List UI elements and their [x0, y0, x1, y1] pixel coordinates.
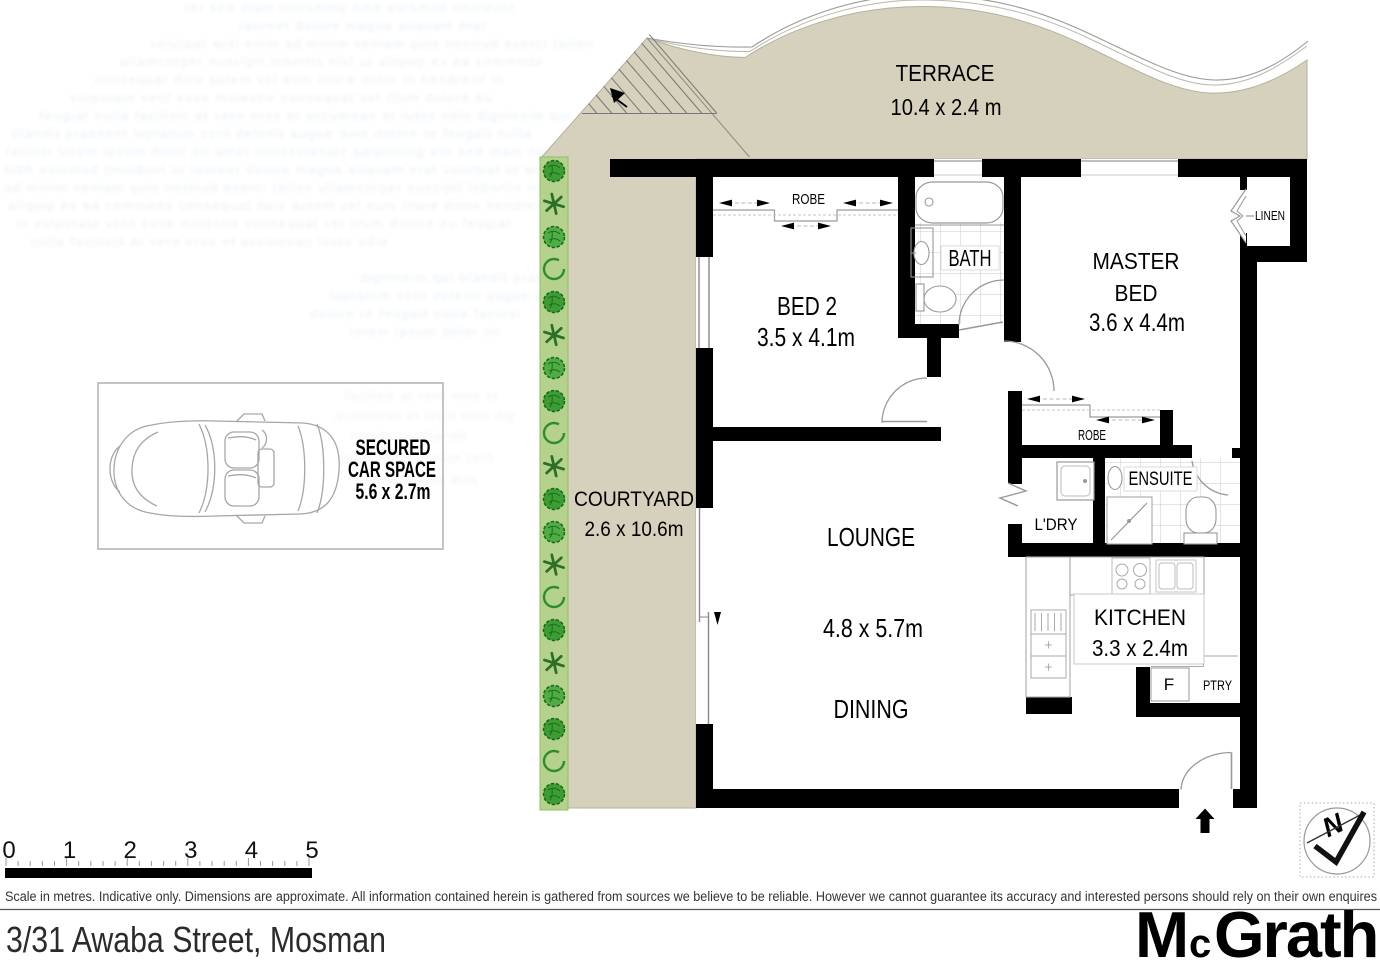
svg-text:ad minim veniam quis nostrud e: ad minim veniam quis nostrud exerci tati… [4, 180, 572, 195]
svg-text:volutpat wisi enim ad minim ve: volutpat wisi enim ad minim veniam quis … [150, 36, 594, 51]
svg-text:5: 5 [305, 837, 318, 864]
svg-text:blandit praesent luptatum zzri: blandit praesent luptatum zzril delenit … [12, 126, 533, 141]
svg-text:2.6 x 10.6m: 2.6 x 10.6m [585, 518, 684, 541]
svg-text:3.3 x 2.4m: 3.3 x 2.4m [1092, 635, 1188, 661]
svg-text:BED 2: BED 2 [777, 291, 837, 321]
svg-text:luptatum zzril delenit augue d: luptatum zzril delenit augue duis [330, 288, 565, 303]
svg-text:ROBE: ROBE [1078, 427, 1106, 444]
svg-text:L'DRY: L'DRY [1035, 516, 1078, 534]
svg-text:KITCHEN: KITCHEN [1094, 605, 1186, 630]
svg-text:Grath: Grath [1214, 898, 1377, 960]
svg-text:ENSUITE: ENSUITE [1129, 469, 1193, 490]
svg-text:aliquip ex ea commodo consequa: aliquip ex ea commodo consequat duis aut… [8, 198, 551, 213]
svg-text:feugiat nulla facilisis at ver: feugiat nulla facilisis at vero eros et … [40, 108, 572, 123]
svg-text:ROBE: ROBE [792, 191, 825, 208]
svg-text:laoreet dolore magna aliquam e: laoreet dolore magna aliquam erat [240, 18, 488, 33]
svg-text:nibh euismod tincidunt ut laor: nibh euismod tincidunt ut laoreet dolore… [4, 162, 592, 177]
svg-text:3.5 x 4.1m: 3.5 x 4.1m [757, 322, 855, 352]
svg-text:3: 3 [184, 837, 197, 864]
svg-text:4.8 x 5.7m: 4.8 x 5.7m [823, 613, 923, 643]
svg-text:TERRACE: TERRACE [896, 60, 995, 86]
svg-text:ullamcorper suscipit lobortis: ullamcorper suscipit lobortis nisl ut al… [120, 54, 544, 69]
svg-text:BED: BED [1115, 280, 1158, 306]
svg-text:COURTYARD: COURTYARD [574, 488, 694, 511]
svg-text:0: 0 [2, 837, 15, 864]
svg-text:3/31 Awaba Street, Mosman: 3/31 Awaba Street, Mosman [6, 919, 386, 960]
svg-text:2: 2 [124, 837, 137, 864]
svg-text:1: 1 [63, 837, 76, 864]
svg-text:accumsan et iusto odio dig: accumsan et iusto odio dig [335, 408, 515, 423]
svg-text:nulla facilisis at vero eros e: nulla facilisis at vero eros et accumsan… [30, 234, 388, 249]
svg-text:MASTER: MASTER [1093, 248, 1180, 274]
svg-text:PTRY: PTRY [1203, 677, 1233, 693]
svg-text:5.6 x 2.7m: 5.6 x 2.7m [356, 479, 431, 504]
svg-text:DINING: DINING [834, 694, 909, 724]
svg-text:consequat duis autem vel eum i: consequat duis autem vel eum iriure dolo… [95, 72, 504, 87]
svg-text:vulputate velit esse molestie: vulputate velit esse molestie consequat … [70, 90, 493, 105]
svg-text:in vulputate velit esse molest: in vulputate velit esse molestie consequ… [16, 216, 512, 231]
svg-text:3.6 x 4.4m: 3.6 x 4.4m [1089, 309, 1185, 337]
svg-text:LOUNGE: LOUNGE [827, 522, 915, 552]
svg-text:facilisis at vero eros et: facilisis at vero eros et [345, 388, 499, 403]
svg-text:LINEN: LINEN [1255, 209, 1285, 223]
svg-text:facilisi lorem ipsum dolor sit: facilisi lorem ipsum dolor sit amet cons… [6, 144, 596, 159]
svg-text:4: 4 [245, 837, 258, 864]
svg-text:ter sed diam nonummy nibh euis: ter sed diam nonummy nibh euismod tincid… [185, 0, 515, 15]
svg-text:dolore te feugait nulla facili: dolore te feugait nulla facilisi [310, 306, 521, 321]
svg-text:10.4 x 2.4 m: 10.4 x 2.4 m [891, 94, 1002, 120]
svg-text:M: M [1135, 898, 1187, 960]
svg-text:BATH: BATH [949, 245, 992, 271]
svg-text:F: F [1164, 675, 1174, 694]
svg-text:lorem ipsum dolor sit: lorem ipsum dolor sit [350, 324, 501, 339]
svg-text:c: c [1189, 922, 1211, 960]
